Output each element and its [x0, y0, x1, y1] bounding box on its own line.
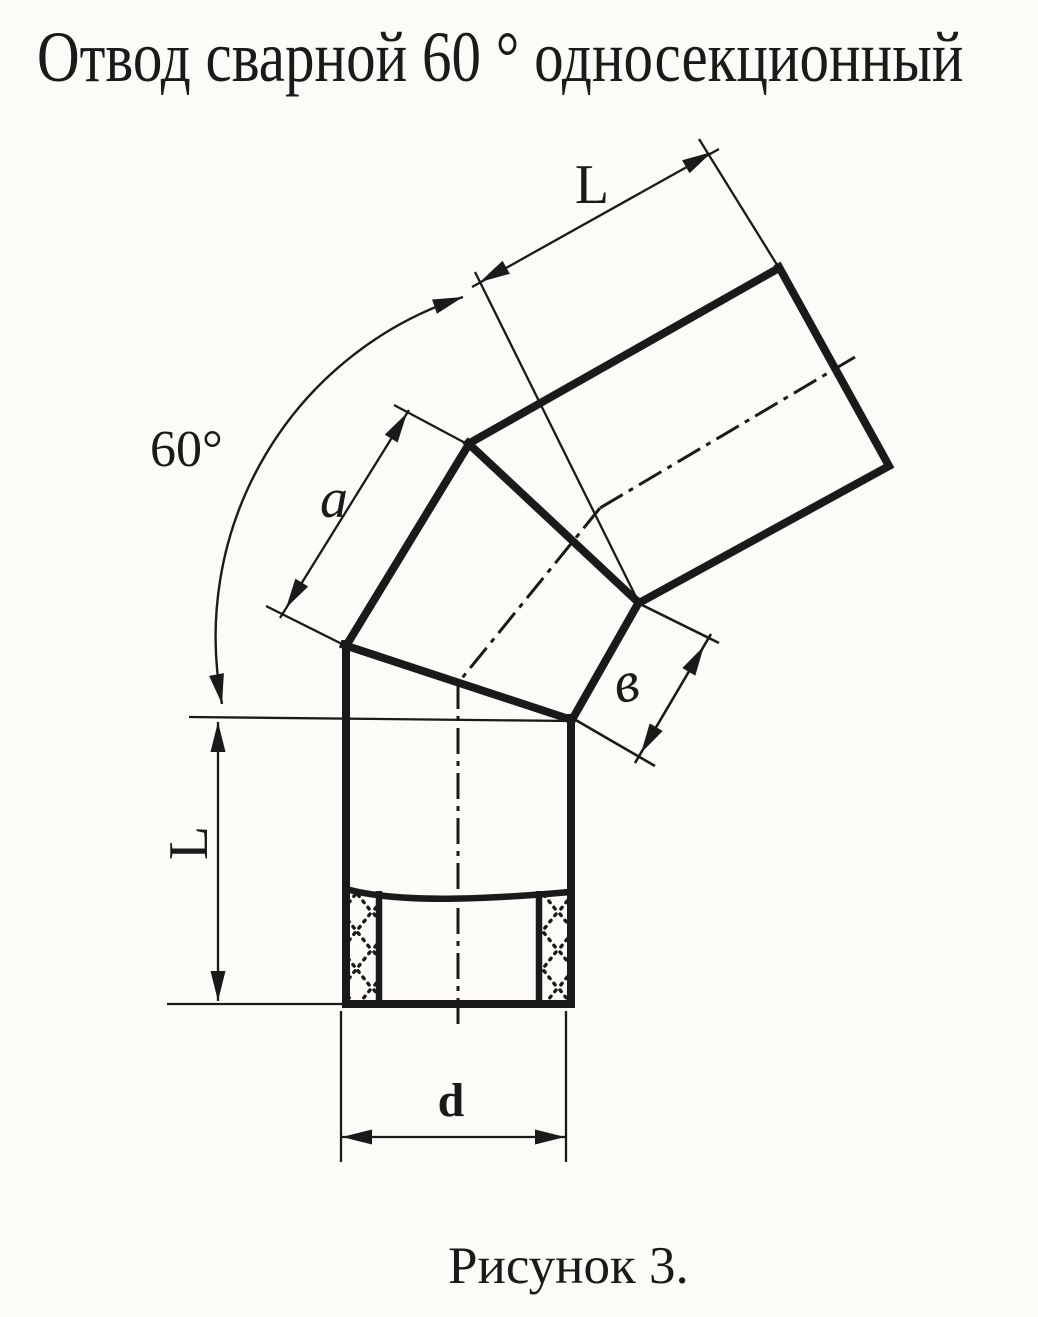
dimension-d: d [341, 1011, 566, 1162]
technical-drawing: Отвод сварной 60 ° односекционный [0, 0, 1038, 1317]
dim-arrow-left [342, 1130, 372, 1145]
dim-arrow-top [211, 722, 226, 752]
extension-line-upper [699, 139, 779, 268]
extension-line-upper [640, 604, 719, 643]
top-pipe-outline [468, 267, 889, 603]
scanned-drawing-page: Отвод сварной 60 ° односекционный [0, 0, 1038, 1317]
dim-arrow-upper [682, 646, 704, 676]
extension-line-lower [475, 272, 639, 603]
angle-dimension-60: 60° [150, 297, 463, 704]
centerline-middle-section [458, 508, 600, 683]
page-title: Отвод сварной 60 ° односекционный [37, 18, 963, 98]
centerlines [458, 357, 855, 1026]
middle-section-outline [346, 443, 639, 718]
dim-arrow-bottom [211, 971, 226, 1001]
dim-arrow-right [682, 152, 712, 173]
socket-hatch-right [540, 893, 569, 1001]
angle-label: 60° [150, 421, 223, 478]
dim-arrow-right [535, 1130, 565, 1145]
figure-caption: Рисунок 3. [448, 1237, 689, 1295]
angle-arrow-top [432, 297, 463, 314]
extension-line-lower [266, 606, 346, 646]
dim-label-L-bottom: L [158, 826, 220, 860]
socket-hatch-left [348, 893, 378, 1001]
angle-arrow-bottom [209, 673, 224, 704]
extension-line-lower [574, 719, 655, 766]
dim-label-b: в [607, 648, 645, 717]
dim-arrow-upper [385, 413, 407, 443]
centerline-top-pipe [600, 357, 855, 508]
dim-arrow-left [480, 261, 510, 282]
dim-label-L-top: L [575, 154, 609, 216]
dim-arrow-lower [286, 579, 308, 608]
elbow-outline [344, 267, 889, 1004]
extension-line-top [189, 717, 572, 721]
extension-line-upper [394, 405, 469, 445]
dim-arrow-lower [641, 723, 663, 753]
dim-label-a: a [320, 468, 348, 530]
dimension-L-top: L [472, 139, 779, 603]
dim-label-d: d [438, 1074, 465, 1127]
